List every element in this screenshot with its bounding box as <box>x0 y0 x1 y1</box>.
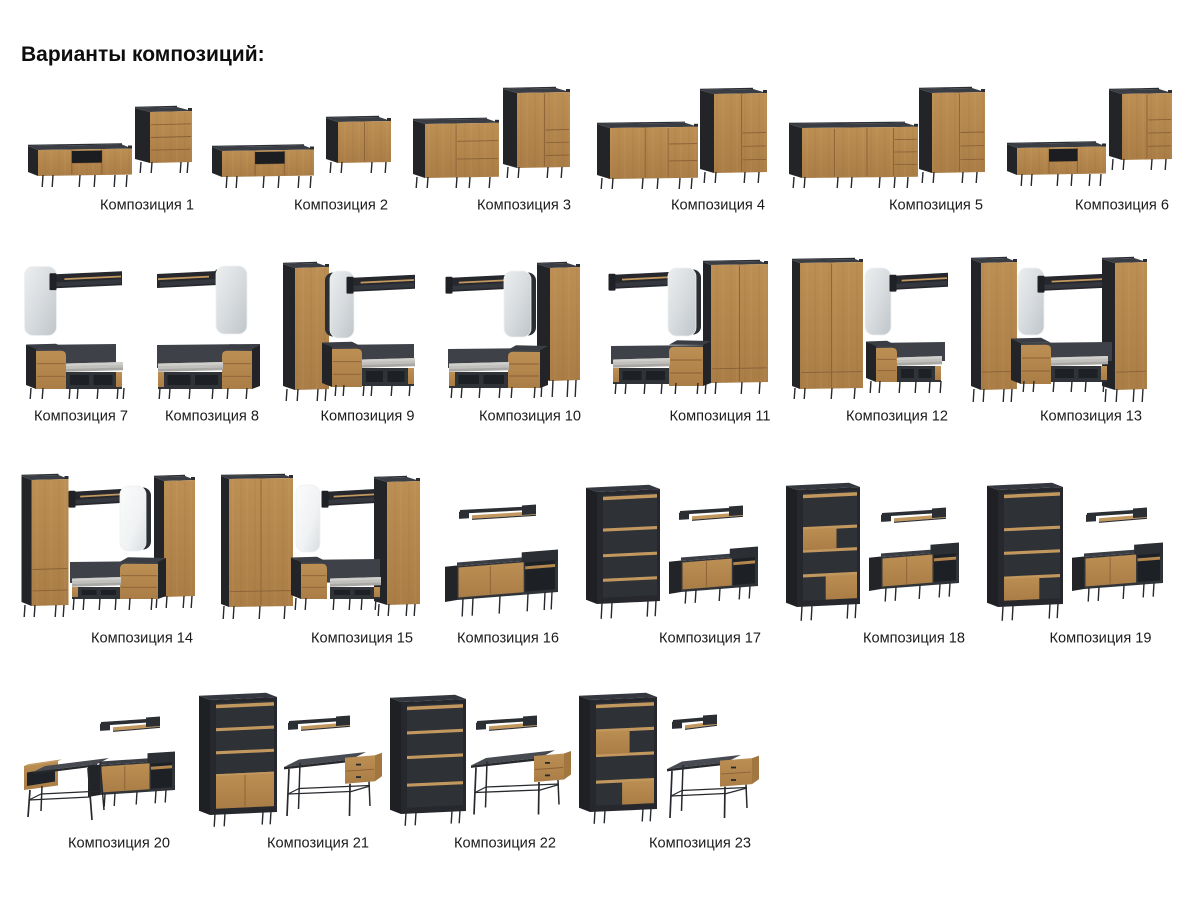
svg-text:Композиция 16: Композиция 16 <box>457 631 559 647</box>
svg-text:Композиция 6: Композиция 6 <box>1075 197 1169 213</box>
svg-text:Композиция 18: Композиция 18 <box>863 631 965 647</box>
svg-text:Композиция 22: Композиция 22 <box>454 836 556 852</box>
svg-text:Композиция 1: Композиция 1 <box>100 197 194 213</box>
svg-text:Композиция 12: Композиция 12 <box>846 409 948 425</box>
svg-text:Композиция 8: Композиция 8 <box>165 409 259 425</box>
svg-text:Композиция 11: Композиция 11 <box>670 409 771 425</box>
svg-text:Композиция 9: Композиция 9 <box>321 409 415 425</box>
svg-text:Композиция 5: Композиция 5 <box>889 197 983 213</box>
svg-text:Композиция 23: Композиция 23 <box>649 836 751 852</box>
svg-text:Композиция 2: Композиция 2 <box>294 197 388 213</box>
svg-text:Композиция 3: Композиция 3 <box>477 197 571 213</box>
svg-text:Композиция 15: Композиция 15 <box>311 631 413 647</box>
svg-text:Композиция 7: Композиция 7 <box>34 409 128 425</box>
svg-text:Композиция 17: Композиция 17 <box>659 631 761 647</box>
svg-text:Варианты композиций:: Варианты композиций: <box>21 43 265 66</box>
svg-text:Композиция 20: Композиция 20 <box>68 836 170 852</box>
svg-text:Композиция 19: Композиция 19 <box>1049 631 1151 647</box>
svg-text:Композиция 13: Композиция 13 <box>1040 409 1142 425</box>
svg-text:Композиция 4: Композиция 4 <box>671 197 765 213</box>
svg-text:Композиция 10: Композиция 10 <box>479 409 581 425</box>
svg-text:Композиция 21: Композиция 21 <box>267 836 369 852</box>
svg-text:Композиция 14: Композиция 14 <box>91 631 193 647</box>
